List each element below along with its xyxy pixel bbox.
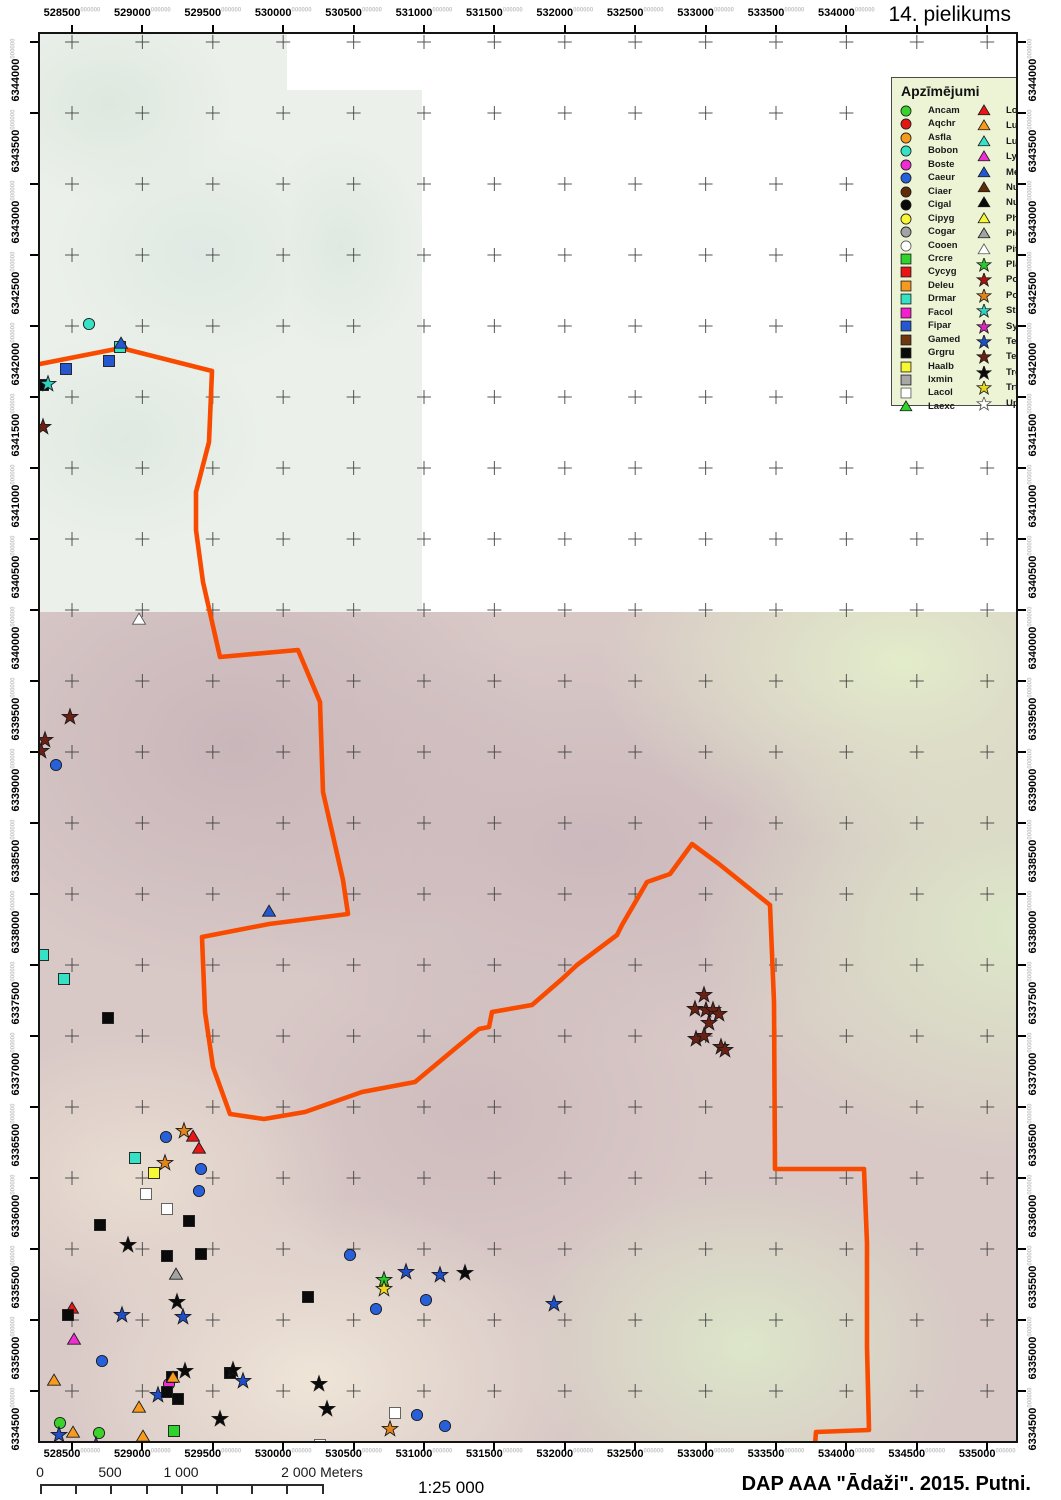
grid-tick-right bbox=[1018, 822, 1026, 824]
marker-Caeur bbox=[439, 1420, 450, 1431]
legend-glyph-Upepo bbox=[977, 397, 991, 410]
grid-tick-right bbox=[1018, 1248, 1026, 1250]
marker-Drmar bbox=[130, 1153, 141, 1164]
marker-Trgla bbox=[457, 1265, 473, 1280]
grid-tick-left bbox=[30, 609, 38, 611]
legend-symbol-Pican bbox=[976, 227, 992, 241]
grid-tick-right bbox=[1018, 396, 1026, 398]
legend-item-Stura: Stura bbox=[892, 305, 1018, 317]
grid-tick-right bbox=[1018, 1390, 1026, 1392]
marker-Trgla bbox=[169, 1294, 185, 1309]
legend-glyph-Lolus bbox=[978, 105, 990, 115]
scale-ratio: 1:25 000 bbox=[418, 1478, 484, 1498]
legend-glyph-Teuro bbox=[977, 350, 991, 363]
grid-tick-left bbox=[30, 538, 38, 540]
grid-tick-right bbox=[1018, 41, 1026, 43]
marker-Tetet bbox=[398, 1264, 414, 1279]
legend-glyph-Nupha bbox=[978, 197, 990, 207]
legend-label-Popar: Popar bbox=[1006, 274, 1018, 285]
scale-bar-tick bbox=[40, 1484, 42, 1494]
marker-Tetet bbox=[51, 1427, 67, 1441]
grid-tick-bottom bbox=[212, 1442, 214, 1450]
legend-item-Nuarq: Nuarq bbox=[892, 182, 1018, 194]
markers-layer bbox=[40, 318, 733, 1441]
grid-tick-right bbox=[1018, 680, 1026, 682]
grid-tick-top bbox=[564, 25, 566, 33]
grid-tick-top bbox=[986, 25, 988, 33]
grid-tick-bottom bbox=[775, 1442, 777, 1450]
marker-Caeur bbox=[160, 1131, 171, 1142]
grid-tick-top bbox=[71, 25, 73, 33]
legend-symbol-Synis bbox=[976, 320, 992, 334]
grid-tick-bottom bbox=[916, 1442, 918, 1450]
marker-Grgru bbox=[196, 1249, 207, 1260]
grid-tick-bottom bbox=[71, 1442, 73, 1450]
marker-Caeur bbox=[344, 1249, 355, 1260]
marker-Trgla bbox=[212, 1411, 228, 1426]
credit-text: DAP AAA "Ādaži". 2015. Putni. bbox=[742, 1473, 1031, 1496]
marker-Fipar bbox=[61, 364, 72, 375]
marker-Crcre bbox=[169, 1426, 180, 1437]
legend-symbol-Plapr bbox=[976, 258, 992, 272]
grid-tick-top bbox=[634, 25, 636, 33]
legend-symbol-Pitri bbox=[976, 243, 992, 257]
grid-tick-left bbox=[30, 1248, 38, 1250]
grid-tick-top bbox=[493, 25, 495, 33]
legend-item-Synis: Synis bbox=[892, 321, 1018, 333]
legend-item-Nupha: Nupha bbox=[892, 197, 1018, 209]
protected-area-boundary bbox=[40, 348, 869, 1441]
marker-Caeur bbox=[420, 1294, 431, 1305]
scale-bar-tick bbox=[110, 1484, 112, 1494]
marker-Tetet bbox=[175, 1309, 191, 1324]
legend-symbol-Trtot bbox=[976, 381, 992, 395]
legend-label-Phpug: Phpug bbox=[1006, 213, 1018, 224]
grid-tick-left bbox=[30, 964, 38, 966]
grid-tick-left bbox=[30, 396, 38, 398]
scale-bar-tick bbox=[251, 1484, 253, 1494]
grid-tick-left bbox=[30, 1319, 38, 1321]
legend-label-Trtot: Trtot bbox=[1006, 382, 1018, 393]
legend-label-Lusve: Lusve bbox=[1006, 136, 1018, 147]
legend-symbol-Trgla bbox=[976, 366, 992, 380]
legend-symbol-Phpug bbox=[976, 212, 992, 226]
legend-item-Lymin: Lymin bbox=[892, 151, 1018, 163]
scale-bar-tick bbox=[286, 1484, 288, 1494]
y-label-right: 6334500000000 bbox=[1027, 1369, 1039, 1469]
marker-Drmar bbox=[59, 974, 70, 985]
legend-glyph-Pican bbox=[978, 228, 990, 238]
scale-bar-tick bbox=[216, 1484, 218, 1494]
page-title: 14. pielikums bbox=[888, 3, 1011, 27]
marker-Grgru bbox=[63, 1310, 74, 1321]
marker-Caeur bbox=[370, 1303, 381, 1314]
scale-bar-label: 0 bbox=[36, 1464, 44, 1480]
legend-glyph-Synis bbox=[977, 320, 991, 333]
scale-bar-tick bbox=[181, 1484, 183, 1494]
marker-Bobon bbox=[83, 318, 94, 329]
marker-Luarb bbox=[67, 1426, 80, 1437]
legend-glyph-Trgla bbox=[977, 366, 991, 379]
marker-Lacol bbox=[315, 1440, 326, 1442]
legend-label-Stura: Stura bbox=[1006, 305, 1018, 316]
legend-glyph-Tetet bbox=[977, 335, 991, 348]
marker-Caeur bbox=[195, 1163, 206, 1174]
grid-tick-right bbox=[1018, 964, 1026, 966]
legend-item-Plapr: Plapr bbox=[892, 259, 1018, 271]
legend-label-Pitri: Pitri bbox=[1006, 244, 1018, 255]
marker-Grgru bbox=[95, 1220, 106, 1231]
legend-item-Pitri: Pitri bbox=[892, 244, 1018, 256]
marker-Pitri bbox=[133, 613, 146, 624]
marker-Trgla bbox=[120, 1237, 136, 1252]
marker-Teuro bbox=[40, 419, 51, 434]
grid-tick-right bbox=[1018, 467, 1026, 469]
legend-item-Phpug: Phpug bbox=[892, 213, 1018, 225]
legend-glyph-Memer bbox=[978, 166, 990, 176]
grid-tick-right bbox=[1018, 1035, 1026, 1037]
grid-tick-top bbox=[282, 25, 284, 33]
grid-tick-bottom bbox=[705, 1442, 707, 1450]
legend-box: Apzīmējumi AncamAqchrAsflaBobonBosteCaeu… bbox=[891, 77, 1018, 406]
grid-tick-top bbox=[845, 25, 847, 33]
legend-item-Memer: Memer bbox=[892, 167, 1018, 179]
grid-tick-left bbox=[30, 893, 38, 895]
marker-Lacol bbox=[162, 1204, 173, 1215]
legend-symbol-Teuro bbox=[976, 350, 992, 364]
legend-label-Pican: Pican bbox=[1006, 228, 1018, 239]
legend-glyph-Nuarq bbox=[978, 182, 990, 192]
grid-tick-left bbox=[30, 467, 38, 469]
legend-symbol-Luarb bbox=[976, 119, 992, 133]
marker-Grgru bbox=[103, 1013, 114, 1024]
legend-label-Lymin: Lymin bbox=[1006, 151, 1018, 162]
grid-tick-right bbox=[1018, 1319, 1026, 1321]
grid-tick-right bbox=[1018, 254, 1026, 256]
legend-label-Upepo: Upepo bbox=[1006, 398, 1018, 409]
scale-bar-label: 500 bbox=[98, 1464, 121, 1480]
legend-item-Pican: Pican bbox=[892, 228, 1018, 240]
legend-symbol-Nupha bbox=[976, 196, 992, 210]
marker-Drmar bbox=[40, 950, 49, 961]
map-page: 14. pielikums Apzīmējumi AncamAqchrAsfla… bbox=[0, 0, 1061, 1500]
marker-Luarb bbox=[48, 1374, 61, 1385]
grid-tick-left bbox=[30, 112, 38, 114]
marker-Fipar bbox=[104, 356, 115, 367]
legend-label-Nuarq: Nuarq bbox=[1006, 182, 1018, 193]
grid-tick-bottom bbox=[141, 1442, 143, 1450]
scale-bar-tick bbox=[146, 1484, 148, 1494]
marker-Grgru bbox=[303, 1292, 314, 1303]
x-label-top: 534000000000 bbox=[796, 7, 896, 19]
legend-item-Teuro: Teuro bbox=[892, 351, 1018, 363]
marker-Caeur bbox=[193, 1185, 204, 1196]
marker-Lacol bbox=[141, 1189, 152, 1200]
grid-tick-left bbox=[30, 680, 38, 682]
marker-Teuro bbox=[696, 987, 712, 1002]
marker-Trgla bbox=[319, 1401, 335, 1416]
marker-Teuro bbox=[62, 709, 78, 724]
grid-tick-top bbox=[212, 25, 214, 33]
marker-Tetet bbox=[114, 1307, 130, 1322]
legend-label-Popor: Popor bbox=[1006, 290, 1018, 301]
grid-tick-left bbox=[30, 41, 38, 43]
legend-label-Synis: Synis bbox=[1006, 321, 1018, 332]
legend-symbol-Upepo bbox=[976, 397, 992, 411]
legend-glyph-Phpug bbox=[978, 213, 990, 223]
legend-glyph-Luarb bbox=[978, 120, 990, 130]
grid-tick-top bbox=[705, 25, 707, 33]
marker-Popor bbox=[382, 1421, 398, 1436]
legend-symbol-Stura bbox=[976, 304, 992, 318]
marker-Luarb bbox=[137, 1430, 150, 1441]
legend-glyph-Trtot bbox=[977, 381, 991, 394]
legend-item-Lolus: Lolus bbox=[892, 105, 1018, 117]
grid-tick-bottom bbox=[353, 1442, 355, 1450]
grid-tick-right bbox=[1018, 1177, 1026, 1179]
legend-label-Plapr: Plapr bbox=[1006, 259, 1018, 270]
legend-glyph-Pitri bbox=[978, 243, 990, 253]
legend-symbol-Popar bbox=[976, 273, 992, 287]
legend-item-Trgla: Trgla bbox=[892, 367, 1018, 379]
legend-glyph-Lusve bbox=[978, 136, 990, 146]
marker-Lacol bbox=[390, 1408, 401, 1419]
marker-Ancam bbox=[93, 1427, 104, 1438]
marker-Caeur bbox=[50, 759, 61, 770]
legend-item-Popar: Popar bbox=[892, 274, 1018, 286]
grid-tick-right bbox=[1018, 1106, 1026, 1108]
marker-Grgru bbox=[162, 1387, 173, 1398]
legend-symbol-Lymin bbox=[976, 150, 992, 164]
grid-tick-right bbox=[1018, 751, 1026, 753]
legend-label-Memer: Memer bbox=[1006, 167, 1018, 178]
grid-tick-left bbox=[30, 325, 38, 327]
grid-tick-bottom bbox=[423, 1442, 425, 1450]
legend-symbol-Popor bbox=[976, 289, 992, 303]
legend-item-Lusve: Lusve bbox=[892, 136, 1018, 148]
marker-Caeur bbox=[411, 1409, 422, 1420]
legend-item-Trtot: Trtot bbox=[892, 382, 1018, 394]
grid-tick-right bbox=[1018, 112, 1026, 114]
y-label-left: 6334500000000 bbox=[10, 1369, 22, 1469]
grid-tick-top bbox=[141, 25, 143, 33]
legend-label-Teuro: Teuro bbox=[1006, 351, 1018, 362]
grid-tick-left bbox=[30, 183, 38, 185]
legend-symbol-Lolus bbox=[976, 104, 992, 118]
legend-item-Tetet: Tetet bbox=[892, 336, 1018, 348]
marker-Caeur bbox=[96, 1355, 107, 1366]
scale-bar-label: 2 000 Meters bbox=[281, 1464, 363, 1480]
legend-label-Trgla: Trgla bbox=[1006, 367, 1018, 378]
legend-glyph-Popar bbox=[977, 273, 991, 286]
legend-label-Lolus: Lolus bbox=[1006, 105, 1018, 116]
grid-tick-left bbox=[30, 1177, 38, 1179]
grid-tick-left bbox=[30, 1106, 38, 1108]
marker-Lymin bbox=[68, 1333, 81, 1344]
grid-tick-bottom bbox=[282, 1442, 284, 1450]
grid-tick-left bbox=[30, 1390, 38, 1392]
map-canvas: Apzīmējumi AncamAqchrAsflaBobonBosteCaeu… bbox=[38, 32, 1018, 1443]
marker-Memer bbox=[263, 905, 276, 916]
marker-Teuro bbox=[701, 1015, 717, 1030]
marker-Trgla bbox=[177, 1363, 193, 1378]
grid-tick-right bbox=[1018, 325, 1026, 327]
scale-bar-label: 1 000 bbox=[163, 1464, 198, 1480]
marker-Trgla bbox=[311, 1376, 327, 1391]
legend-item-Popor: Popor bbox=[892, 290, 1018, 302]
legend-label-Nupha: Nupha bbox=[1006, 197, 1018, 208]
marker-Grgru bbox=[173, 1394, 184, 1405]
legend-symbol-Lusve bbox=[976, 135, 992, 149]
grid-tick-left bbox=[30, 1035, 38, 1037]
legend-symbol-Nuarq bbox=[976, 181, 992, 195]
grid-tick-bottom bbox=[634, 1442, 636, 1450]
marker-Grgru bbox=[184, 1216, 195, 1227]
marker-Luarb bbox=[133, 1401, 146, 1412]
marker-Haalb bbox=[149, 1168, 160, 1179]
grid-tick-bottom bbox=[845, 1442, 847, 1450]
marker-Tetet bbox=[432, 1267, 448, 1282]
grid-tick-top bbox=[353, 25, 355, 33]
marker-Grgru bbox=[162, 1251, 173, 1262]
grid-tick-bottom bbox=[986, 1442, 988, 1450]
grid-tick-left bbox=[30, 822, 38, 824]
legend-item-Luarb: Luarb bbox=[892, 120, 1018, 132]
legend-glyph-Lymin bbox=[978, 151, 990, 161]
grid-tick-left bbox=[30, 254, 38, 256]
legend-glyph-Popor bbox=[977, 289, 991, 302]
legend-glyph-Plapr bbox=[977, 258, 991, 271]
grid-tick-top bbox=[916, 25, 918, 33]
grid-tick-bottom bbox=[493, 1442, 495, 1450]
legend-item-Upepo: Upepo bbox=[892, 398, 1018, 410]
grid-tick-right bbox=[1018, 893, 1026, 895]
grid-tick-right bbox=[1018, 183, 1026, 185]
grid-tick-bottom bbox=[564, 1442, 566, 1450]
marker-Trtot bbox=[376, 1281, 392, 1296]
grid-tick-right bbox=[1018, 609, 1026, 611]
scale-bar-tick bbox=[75, 1484, 77, 1494]
marker-Ancam bbox=[54, 1417, 65, 1428]
legend-title: Apzīmējumi bbox=[901, 83, 980, 99]
grid-tick-left bbox=[30, 751, 38, 753]
map-overlay bbox=[40, 34, 1016, 1441]
legend-symbol-Memer bbox=[976, 166, 992, 180]
legend-symbol-Tetet bbox=[976, 335, 992, 349]
scale-bar-tick bbox=[322, 1484, 324, 1494]
grid-tick-top bbox=[775, 25, 777, 33]
marker-Lolus bbox=[193, 1142, 206, 1153]
marker-Tetet bbox=[546, 1296, 562, 1311]
marker-Pican bbox=[170, 1268, 183, 1279]
legend-glyph-Stura bbox=[977, 304, 991, 317]
grid-tick-right bbox=[1018, 538, 1026, 540]
grid-tick-top bbox=[423, 25, 425, 33]
legend-label-Luarb: Luarb bbox=[1006, 120, 1018, 131]
legend-label-Tetet: Tetet bbox=[1006, 336, 1018, 347]
